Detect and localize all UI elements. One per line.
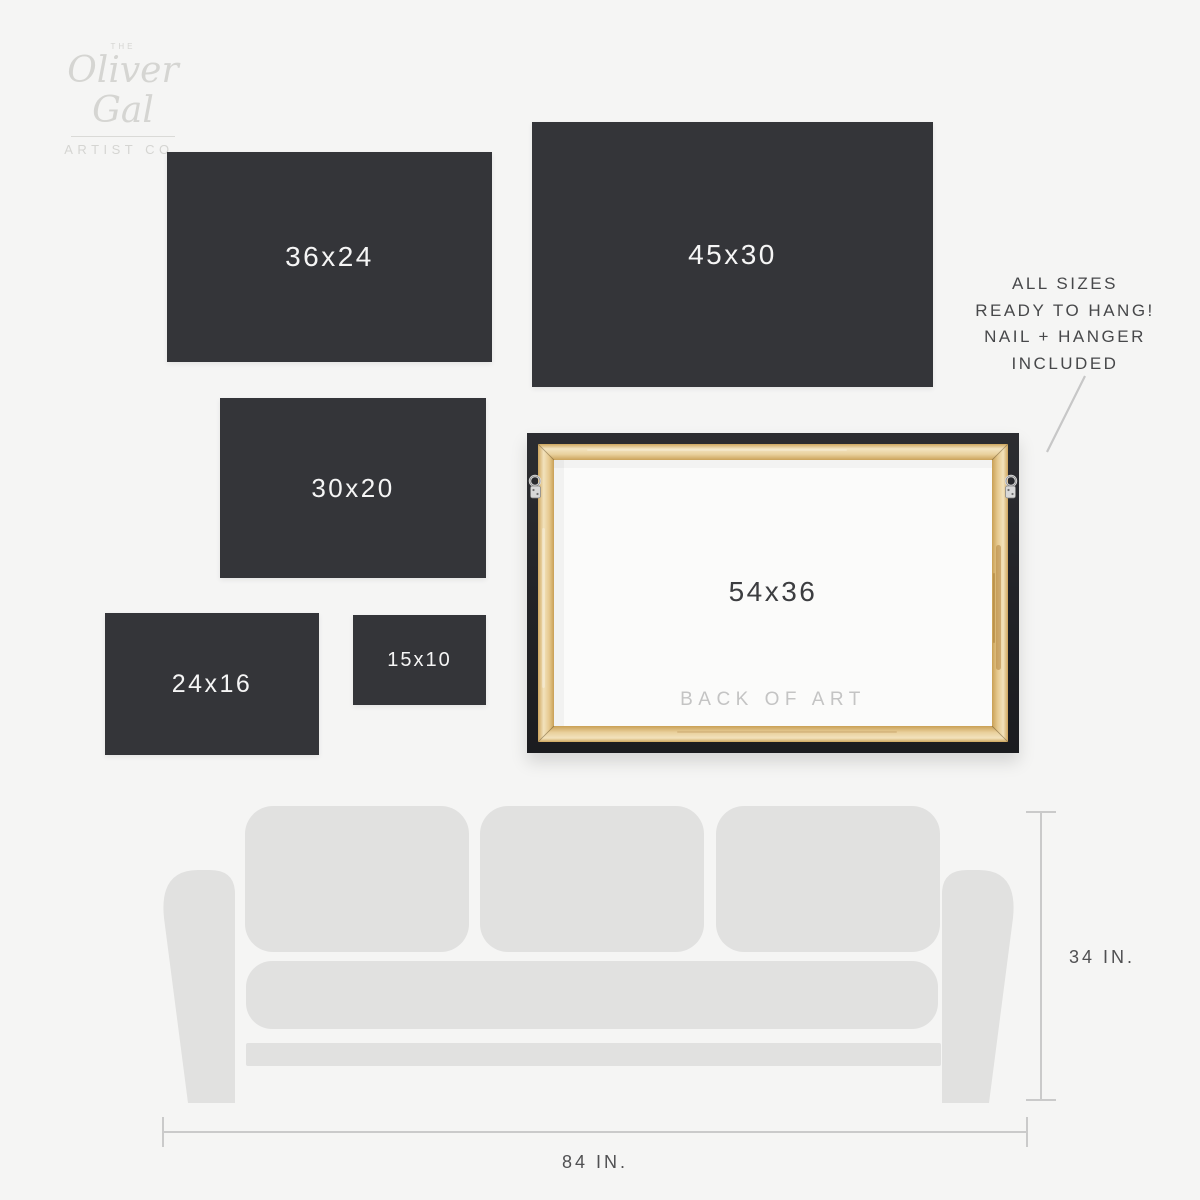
brand-logo: THE Oliver Gal ARTIST CO. <box>48 42 198 157</box>
size-label-54x36: 54x36 <box>527 576 1019 608</box>
stretcher-bar-bottom <box>538 726 1008 742</box>
measure-cap-left <box>162 1117 164 1147</box>
note-line-1: ALL SIZES <box>930 271 1200 298</box>
size-panel-45x30: 45x30 <box>532 122 933 387</box>
size-label-36x24: 36x24 <box>285 241 374 273</box>
measure-line-horizontal <box>163 1131 1027 1133</box>
sofa-armrest-right <box>942 870 1014 1103</box>
measure-line-vertical <box>1040 812 1042 1100</box>
sofa-height-label: 34 IN. <box>1057 947 1147 968</box>
measure-cap-bottom <box>1026 1099 1056 1101</box>
back-of-art-frame: 54x36 BACK OF ART <box>527 433 1019 753</box>
size-label-24x16: 24x16 <box>172 670 253 699</box>
stretcher-bar-top <box>538 444 1008 460</box>
size-panel-36x24: 36x24 <box>167 152 492 362</box>
ready-to-hang-note: ALL SIZES READY TO HANG! NAIL + HANGER I… <box>930 271 1200 377</box>
sofa-armrest-left <box>163 870 235 1103</box>
size-panel-30x20: 30x20 <box>220 398 486 578</box>
note-line-3: NAIL + HANGER <box>930 324 1200 351</box>
brand-name: Oliver Gal <box>48 51 198 131</box>
back-of-art-caption: BACK OF ART <box>527 689 1019 711</box>
canvas-shadow-top <box>554 460 992 468</box>
sofa-back-cushion-2 <box>480 806 704 952</box>
size-guide-canvas: THE Oliver Gal ARTIST CO. 36x24 45x30 30… <box>0 0 1200 1200</box>
note-pointer-line <box>1040 372 1092 456</box>
measure-cap-right <box>1026 1117 1028 1147</box>
sofa-width-label: 84 IN. <box>163 1152 1027 1173</box>
brand-divider <box>71 136 175 137</box>
size-label-30x20: 30x20 <box>311 473 394 504</box>
size-label-45x30: 45x30 <box>688 239 777 271</box>
note-line-2: READY TO HANG! <box>930 298 1200 325</box>
sofa-seat-cushion <box>246 961 938 1029</box>
sofa-back-cushion-3 <box>716 806 940 952</box>
measure-cap-top <box>1026 811 1056 813</box>
sofa-back-cushion-1 <box>245 806 469 952</box>
sofa-base-rail <box>246 1043 941 1066</box>
size-panel-24x16: 24x16 <box>105 613 319 755</box>
sofa-silhouette <box>152 800 1032 1110</box>
size-panel-15x10: 15x10 <box>353 615 486 705</box>
size-label-15x10: 15x10 <box>387 649 452 672</box>
